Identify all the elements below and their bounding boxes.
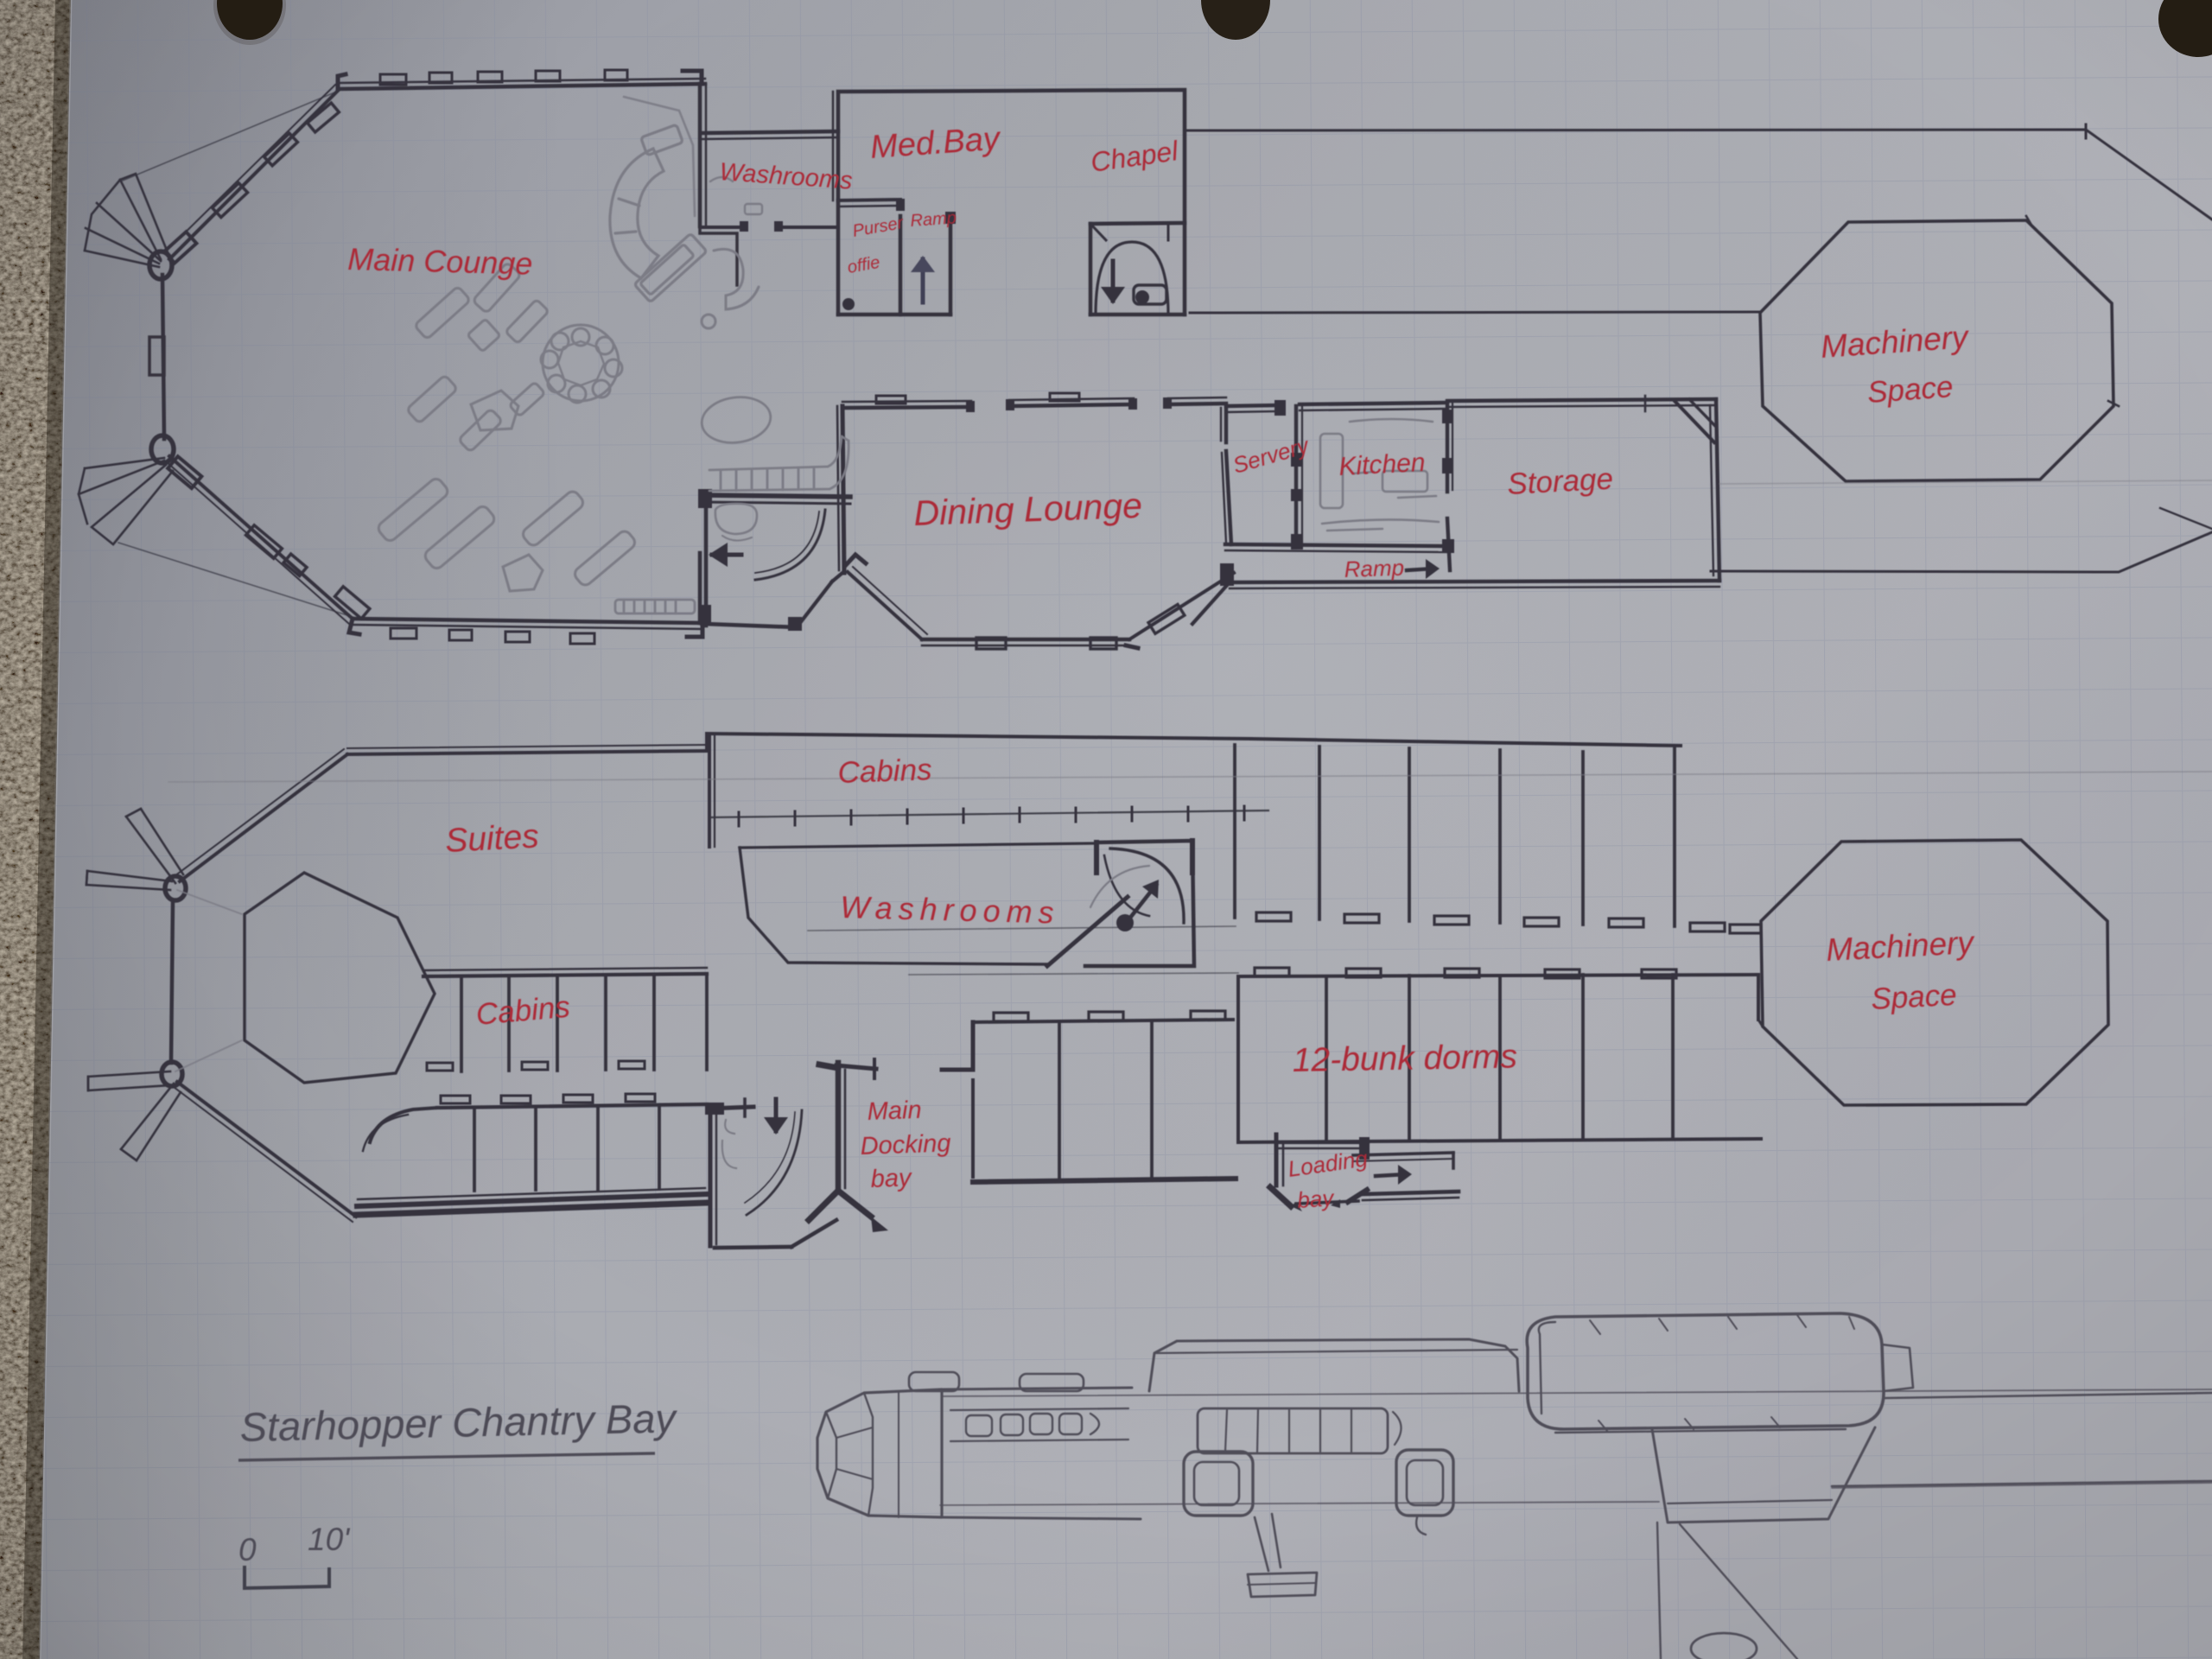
svg-text:0: 0 — [238, 1532, 257, 1567]
svg-text:bay: bay — [1296, 1185, 1336, 1213]
svg-text:Washrooms: Washrooms — [840, 889, 1060, 931]
svg-text:Kitchen: Kitchen — [1338, 448, 1427, 481]
svg-text:Ramp: Ramp — [910, 208, 957, 231]
svg-text:bay: bay — [870, 1164, 912, 1193]
svg-text:Space: Space — [1870, 978, 1957, 1016]
svg-text:Docking: Docking — [860, 1129, 951, 1160]
svg-text:10': 10' — [308, 1522, 351, 1557]
svg-text:Main: Main — [867, 1096, 922, 1126]
svg-text:Dining Lounge: Dining Lounge — [913, 486, 1143, 533]
svg-text:Storage: Storage — [1506, 462, 1613, 501]
svg-text:Ramp: Ramp — [1344, 555, 1404, 582]
svg-text:Cabins: Cabins — [837, 753, 932, 790]
svg-text:Suites: Suites — [444, 817, 540, 860]
svg-text:Starhopper Chantry Bay: Starhopper Chantry Bay — [239, 1395, 678, 1450]
svg-text:Space: Space — [1866, 370, 1955, 410]
svg-text:12-bunk dorms: 12-bunk dorms — [1292, 1038, 1517, 1079]
svg-text:Main Counge: Main Counge — [347, 241, 533, 282]
